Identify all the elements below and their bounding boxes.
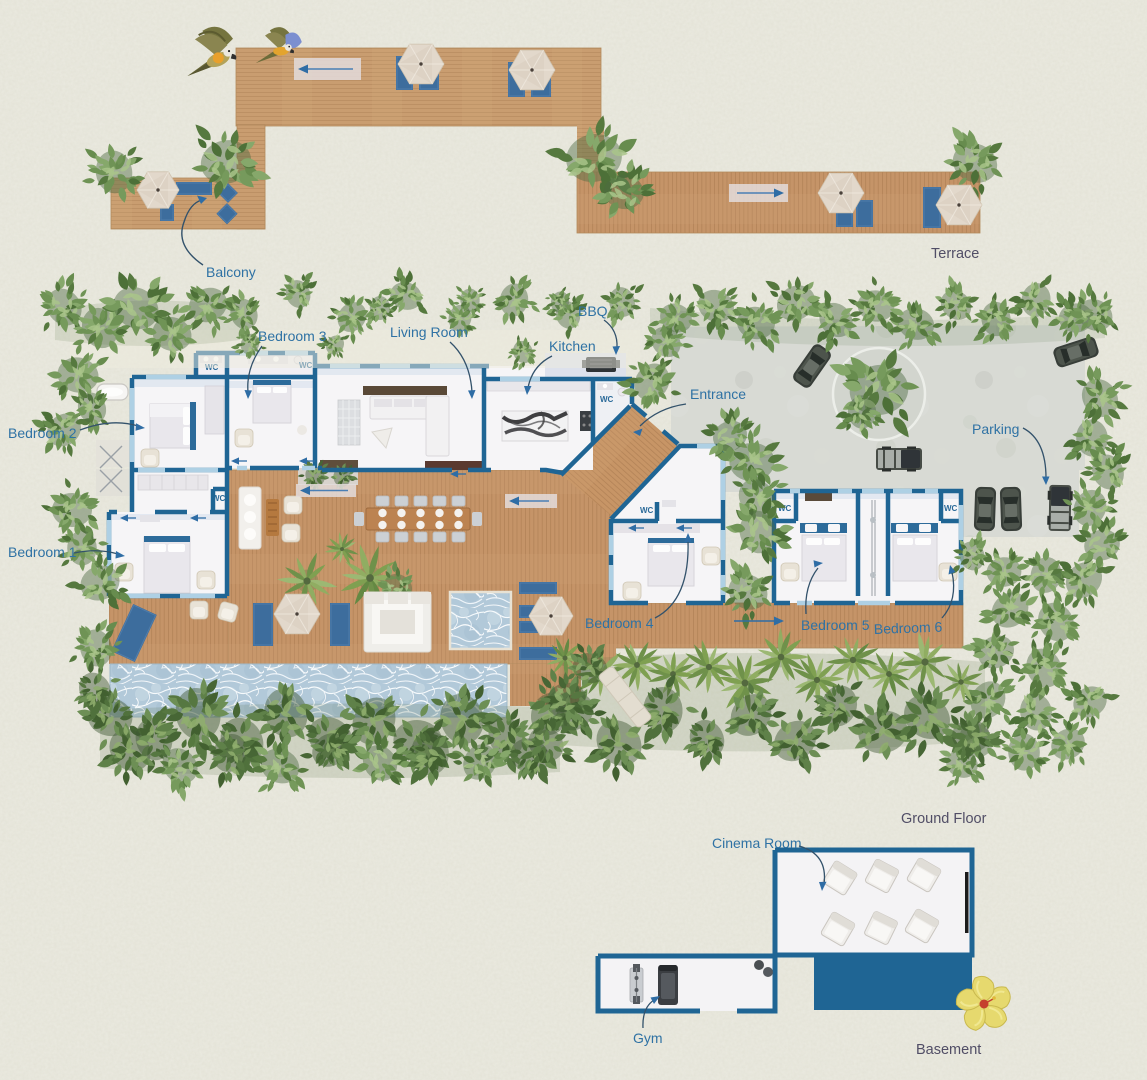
svg-text:BBQ: BBQ xyxy=(578,303,608,319)
svg-text:Bedroom 3: Bedroom 3 xyxy=(258,328,327,344)
svg-text:Balcony: Balcony xyxy=(206,264,256,280)
svg-text:Cinema Room: Cinema Room xyxy=(712,835,801,851)
svg-text:Living Room: Living Room xyxy=(390,324,468,340)
svg-text:Bedroom 4: Bedroom 4 xyxy=(585,615,654,631)
svg-text:Terrace: Terrace xyxy=(931,246,979,262)
svg-text:Basement: Basement xyxy=(916,1042,981,1058)
svg-text:WC: WC xyxy=(600,395,614,404)
svg-text:Gym: Gym xyxy=(633,1030,663,1046)
svg-text:WC: WC xyxy=(944,504,958,513)
svg-text:Bedroom 5: Bedroom 5 xyxy=(801,617,870,633)
svg-text:Bedroom 1: Bedroom 1 xyxy=(8,544,77,560)
svg-text:Ground Floor: Ground Floor xyxy=(901,811,987,827)
svg-text:WC: WC xyxy=(640,506,654,515)
svg-text:Bedroom 6: Bedroom 6 xyxy=(874,619,943,637)
svg-text:Kitchen: Kitchen xyxy=(549,338,596,354)
svg-text:Bedroom 2: Bedroom 2 xyxy=(8,425,77,441)
svg-text:Entrance: Entrance xyxy=(690,386,746,402)
svg-text:Parking: Parking xyxy=(972,421,1019,437)
